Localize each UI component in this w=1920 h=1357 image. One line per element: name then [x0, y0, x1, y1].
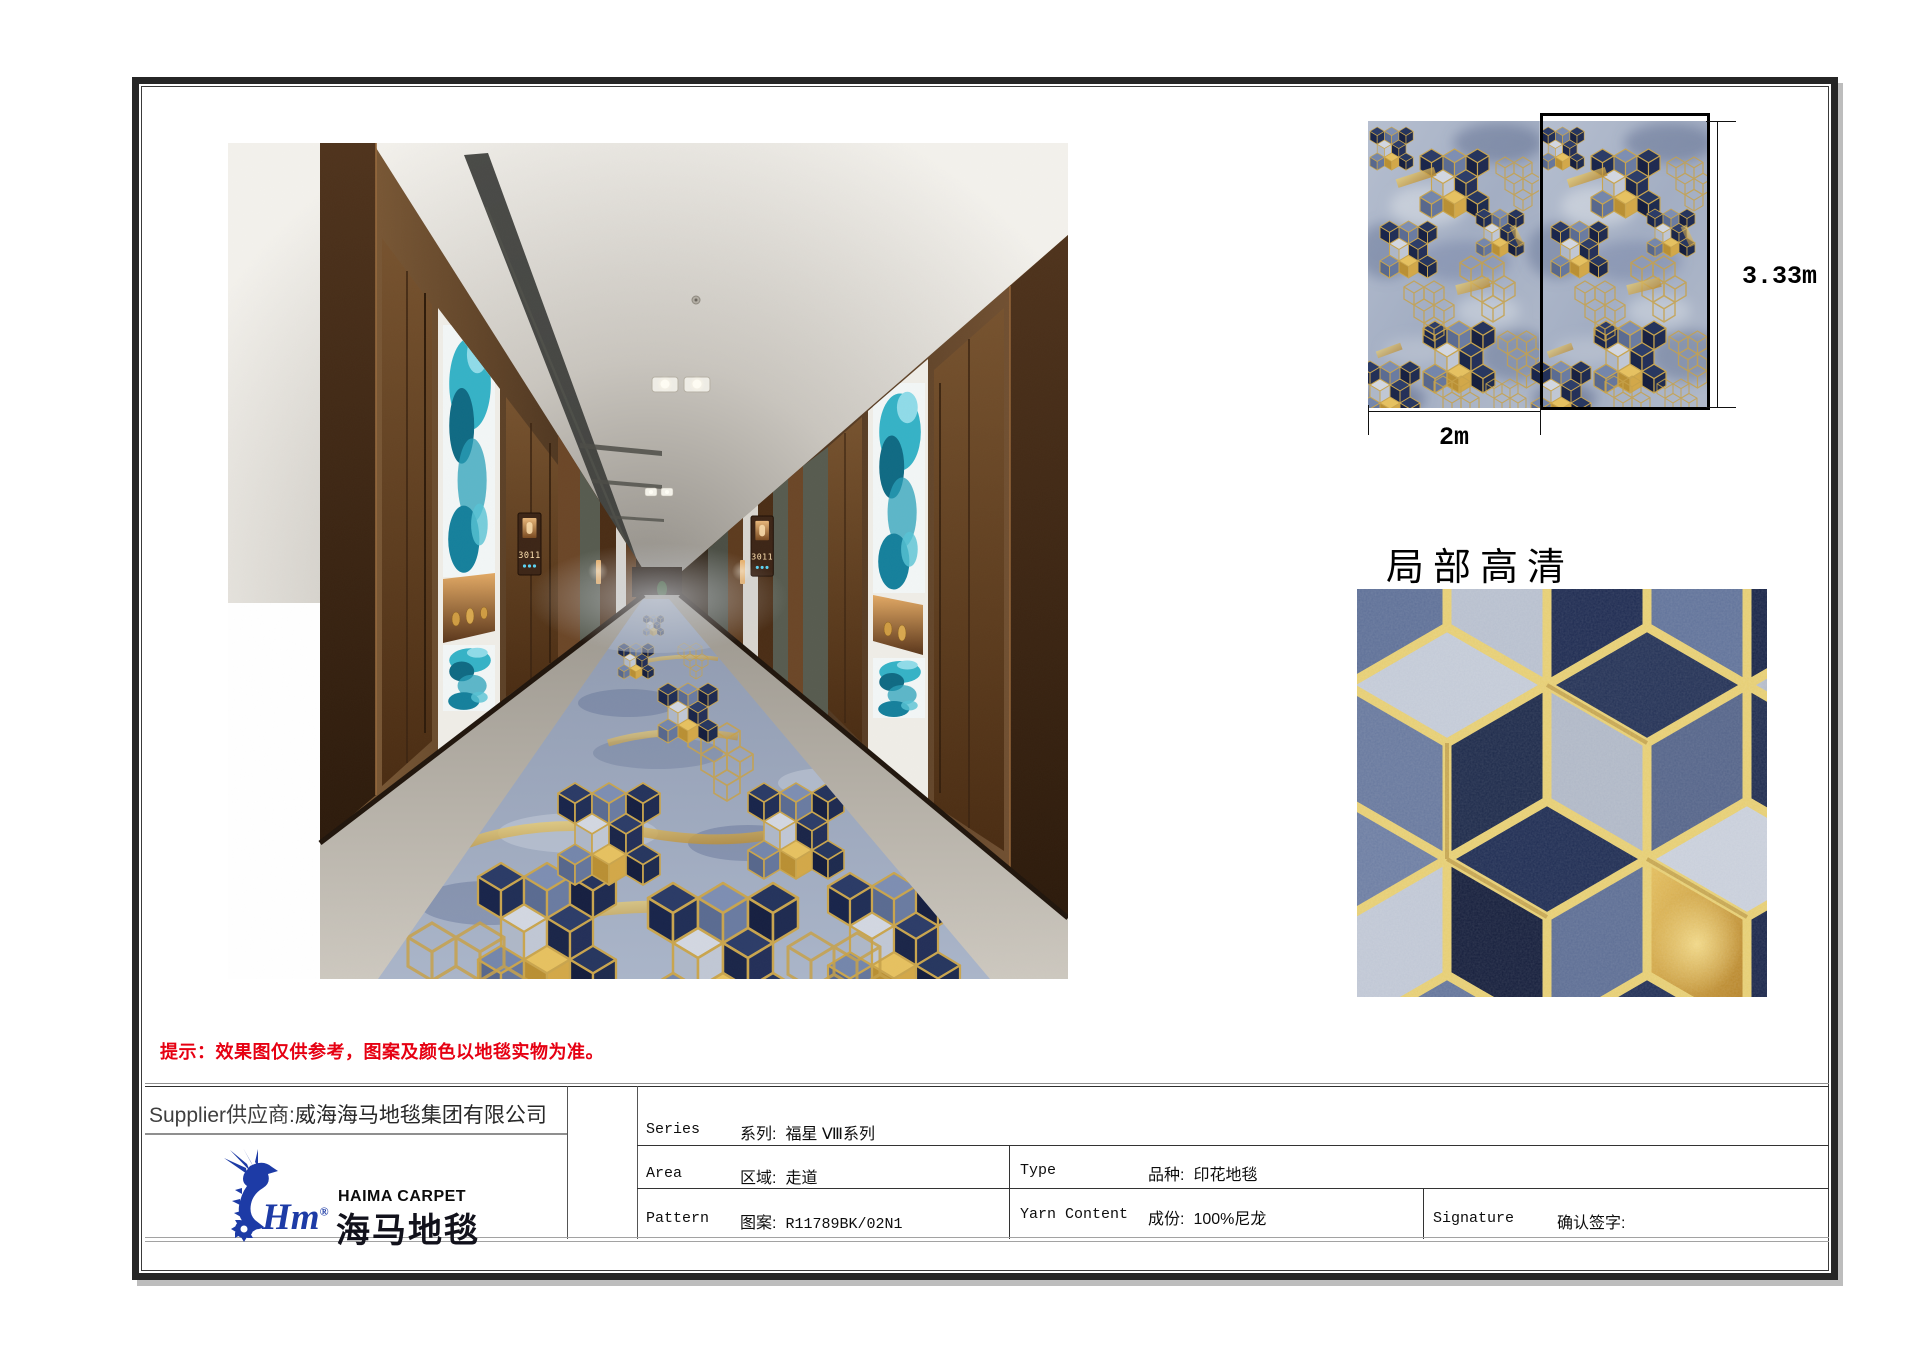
dimension-tick [1706, 407, 1736, 408]
brand-name-zh: 海马地毯 [336, 1203, 480, 1252]
area-value: 区域:走道 [740, 1164, 817, 1188]
dimension-tick [1706, 121, 1736, 122]
supplier-label-en: Supplier [149, 1104, 226, 1127]
table-top-border [145, 1083, 1829, 1084]
detail-view-title: 局部高清 [1386, 536, 1574, 591]
pattern-value: 图案:R11789BK/02N1 [740, 1209, 902, 1233]
table-vertical-divider [637, 1086, 638, 1239]
table-vertical-divider [1009, 1145, 1010, 1239]
supplier-name: 威海海马地毯集团有限公司 [295, 1104, 547, 1127]
type-value: 品种:印花地毯 [1148, 1161, 1257, 1185]
height-dimension-line [1717, 121, 1718, 408]
signature-field: 确认签字: [1557, 1209, 1634, 1233]
width-dimension-line [1368, 411, 1540, 412]
signature-label-en: Signature [1433, 1210, 1514, 1227]
corridor-rendering-image [228, 143, 1068, 979]
yarn-label-en: Yarn Content [1020, 1206, 1128, 1223]
table-top-border-inner [145, 1086, 1829, 1087]
series-label-en: Series [646, 1121, 700, 1138]
height-dimension-label: 3.33m [1742, 262, 1817, 291]
width-dimension-label: 2m [1368, 423, 1540, 452]
supplier-label-zh: 供应商: [226, 1104, 295, 1127]
yarn-value: 成份:100%尼龙 [1148, 1205, 1266, 1229]
supplier-cell-border [145, 1133, 567, 1135]
brand-script-mark: Hm® [262, 1196, 329, 1239]
table-vertical-divider [567, 1086, 568, 1239]
dimension-tick [1540, 405, 1541, 435]
spec-sheet-page: { "notice": { "text": "提示：效果图仅供参考，图案及颜色以… [0, 0, 1920, 1357]
repeat-highlight-rectangle [1540, 113, 1710, 410]
area-label-en: Area [646, 1165, 682, 1182]
table-vertical-divider [1423, 1188, 1424, 1239]
supplier-row: Supplier供应商:威海海马地毯集团有限公司 [149, 1099, 547, 1129]
type-label-en: Type [1020, 1162, 1056, 1179]
carpet-detail-image [1357, 589, 1767, 997]
series-row-border [637, 1145, 1829, 1146]
disclaimer-notice: 提示：效果图仅供参考，图案及颜色以地毯实物为准。 [160, 1038, 604, 1064]
area-row-border [637, 1188, 1829, 1189]
series-value: 系列:福星 Ⅷ系列 [740, 1120, 875, 1144]
pattern-label-en: Pattern [646, 1210, 709, 1227]
